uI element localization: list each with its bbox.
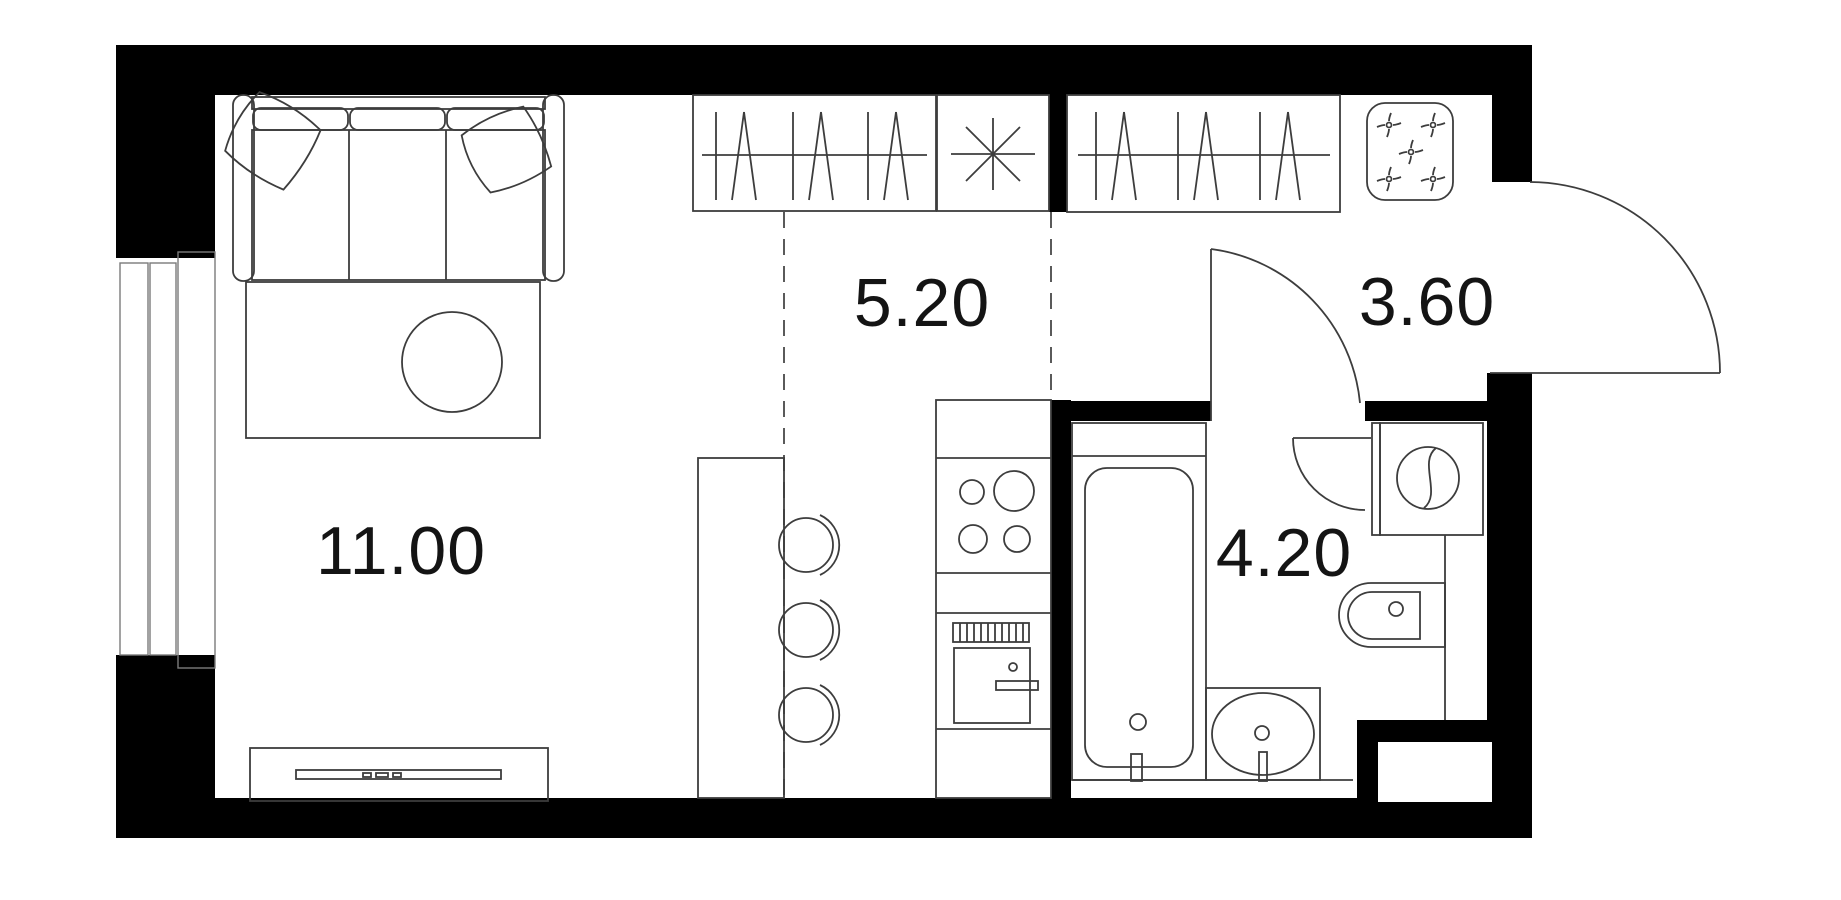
- inner-door-swing-arc: [1293, 438, 1365, 510]
- door-swing-arc: [1211, 249, 1360, 403]
- washing-machine: [1372, 423, 1483, 535]
- hanger-symbols: [716, 112, 908, 200]
- room-label-living: 11.00: [316, 513, 486, 589]
- bar-stool: [779, 603, 833, 657]
- sofa-back-cushion: [253, 108, 348, 130]
- bar-stool: [779, 518, 833, 572]
- wall-right-top: [1492, 45, 1532, 182]
- tub-inner: [1085, 468, 1193, 767]
- door-swing-arc: [1530, 182, 1720, 373]
- basin-faucet: [1259, 752, 1267, 781]
- wall-wardrobe-pier: [1049, 95, 1067, 212]
- oven-vent: [953, 623, 1029, 642]
- wardrobe-box: [693, 95, 936, 211]
- tub-drain: [1130, 714, 1146, 730]
- floor-plan-drawing: 11.00 5.20 3.60 4.20: [0, 0, 1841, 900]
- coffee-table: [402, 312, 502, 412]
- fan-appliance: [1367, 103, 1453, 200]
- window-sill: [178, 252, 215, 668]
- sofa-armrest-right: [543, 95, 564, 281]
- toilet-button: [1389, 602, 1403, 616]
- light-asterisk: [937, 95, 1049, 211]
- room-label-bathroom: 4.20: [1216, 515, 1352, 591]
- wall-top: [116, 45, 1532, 95]
- drum-curve: [1424, 448, 1436, 508]
- tv-button: [376, 773, 388, 777]
- window-pane-middle: [150, 263, 176, 655]
- tub-outer: [1072, 423, 1206, 780]
- hanger-symbols: [1096, 112, 1300, 200]
- washbasin: [1206, 688, 1320, 781]
- burner: [1004, 526, 1030, 552]
- sofa: [218, 87, 564, 281]
- tv-button: [393, 773, 401, 777]
- bathtub: [1072, 423, 1206, 781]
- bar-counter: [698, 458, 839, 798]
- sofa-back-cushion: [447, 108, 544, 130]
- tv-console: [250, 748, 548, 801]
- floor-plan: 11.00 5.20 3.60 4.20: [0, 0, 1841, 900]
- niche-partition: [1372, 423, 1380, 535]
- tv-button: [363, 773, 371, 777]
- wall-bottom: [116, 798, 1532, 838]
- basin-drain: [1255, 726, 1269, 740]
- wall-bath-top-right: [1365, 401, 1492, 421]
- kitchen-counter: [936, 400, 1051, 798]
- wall-left-top-pier: [116, 95, 215, 258]
- pillow-right: [457, 102, 555, 199]
- basin-bowl: [1212, 693, 1314, 775]
- machine-body: [1380, 423, 1483, 535]
- asterisk-icon: [951, 118, 1035, 190]
- wall-bath-top-left: [1071, 401, 1211, 421]
- bar-stool: [779, 688, 833, 742]
- wall-left-bottom-pier: [116, 655, 215, 798]
- tv-stand: [250, 748, 548, 801]
- room-labels: 11.00 5.20 3.60 4.20: [316, 264, 1495, 591]
- wardrobe-left: [693, 95, 936, 211]
- oven: [953, 623, 1038, 723]
- room-label-hallway: 3.60: [1359, 264, 1495, 340]
- fan-icons: [1377, 113, 1445, 191]
- burner: [994, 471, 1034, 511]
- hob: [959, 471, 1034, 553]
- sofa-back-cushion: [350, 108, 445, 130]
- wall-notch: [1378, 742, 1492, 802]
- bar-stools: [779, 515, 839, 745]
- wall-kitchen-bath: [1051, 400, 1071, 798]
- burner: [960, 480, 984, 504]
- machine-drum: [1397, 447, 1459, 509]
- window-pane-outer: [120, 263, 148, 655]
- basin-cabinet: [1206, 688, 1320, 780]
- toilet-bowl: [1348, 592, 1420, 639]
- room-label-kitchen: 5.20: [854, 265, 990, 341]
- oven-handle: [996, 681, 1038, 690]
- toilet: [1339, 583, 1445, 647]
- oven-door: [954, 648, 1030, 723]
- wall-right-bottom: [1487, 373, 1532, 838]
- bathroom-door: [1211, 249, 1371, 510]
- counter-run: [936, 400, 1051, 798]
- burner: [959, 525, 987, 553]
- rug: [246, 282, 540, 438]
- sofa-seat: [252, 130, 545, 280]
- oven-knob: [1009, 663, 1017, 671]
- window: [120, 252, 215, 668]
- entrance-door: [1490, 182, 1720, 373]
- bar-top: [698, 458, 784, 798]
- appliance-body: [1367, 103, 1453, 200]
- wardrobe-right: [1067, 95, 1340, 212]
